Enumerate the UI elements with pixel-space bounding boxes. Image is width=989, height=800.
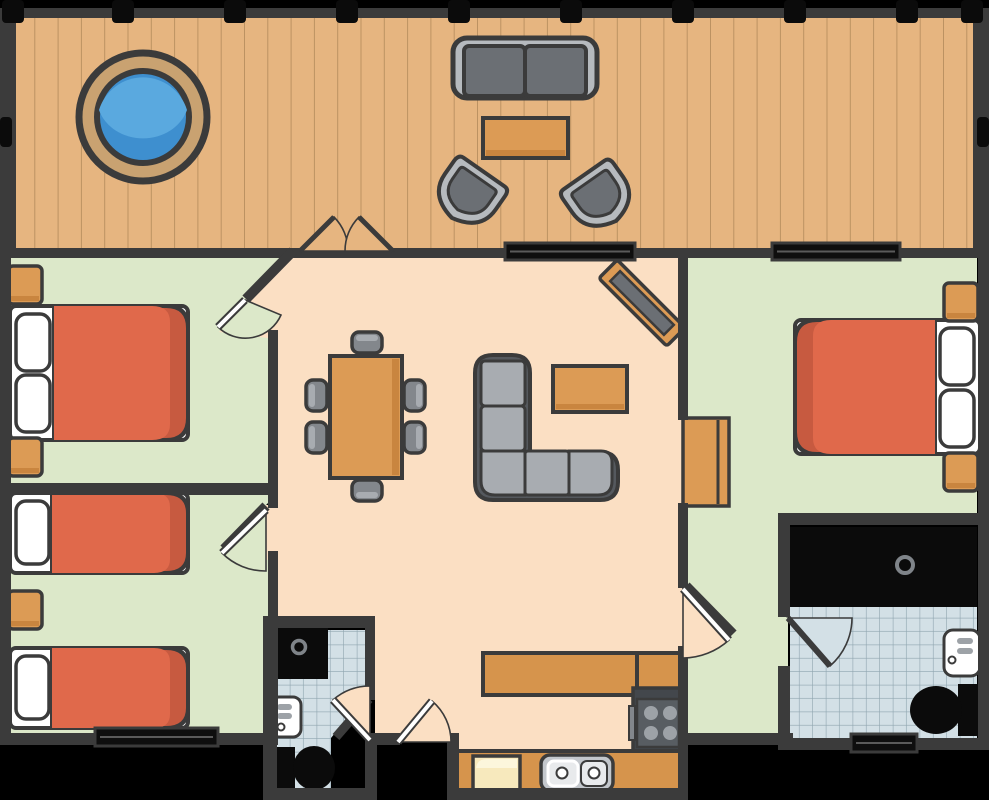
bed-double-left	[10, 306, 188, 440]
kitchen-sink	[541, 755, 613, 791]
nightstand	[8, 266, 42, 304]
sink-ensuite	[944, 630, 980, 676]
pillow	[16, 375, 50, 432]
pillow	[940, 390, 974, 447]
floor-plan-canvas	[0, 0, 989, 800]
deck-sofa	[453, 38, 597, 98]
nightstand	[8, 438, 42, 476]
window-bedroom2-south	[95, 728, 218, 746]
window-ensuite-south	[851, 734, 917, 752]
dresser	[683, 418, 729, 506]
toilet-small-bathroom	[275, 746, 335, 790]
coffee-table	[553, 366, 627, 412]
dining-chair	[306, 422, 327, 453]
bed-double-right	[795, 320, 980, 454]
dining-chair	[404, 422, 425, 453]
floor-plan	[0, 0, 989, 800]
shower	[277, 627, 328, 679]
nightstand	[944, 453, 978, 491]
bed-single-top	[10, 493, 188, 573]
dining-chair	[306, 380, 327, 411]
nightstand	[8, 591, 42, 629]
dining-chair	[352, 332, 382, 353]
pillow	[16, 656, 49, 719]
stove	[629, 688, 682, 755]
deck-coffee-table	[483, 118, 568, 158]
hot-tub	[79, 53, 207, 181]
pillow	[16, 314, 50, 371]
dining-chair	[352, 480, 382, 501]
window-bedroom3-north	[772, 243, 900, 260]
pillow	[16, 501, 49, 564]
window-living-north	[505, 243, 635, 260]
ensuite-bathtub	[790, 527, 977, 607]
dining-chair	[404, 380, 425, 411]
dining-table	[330, 356, 402, 478]
nightstand	[944, 283, 978, 321]
toilet-ensuite	[910, 684, 980, 736]
bed-single-bottom	[10, 648, 188, 728]
pillow	[940, 328, 974, 385]
